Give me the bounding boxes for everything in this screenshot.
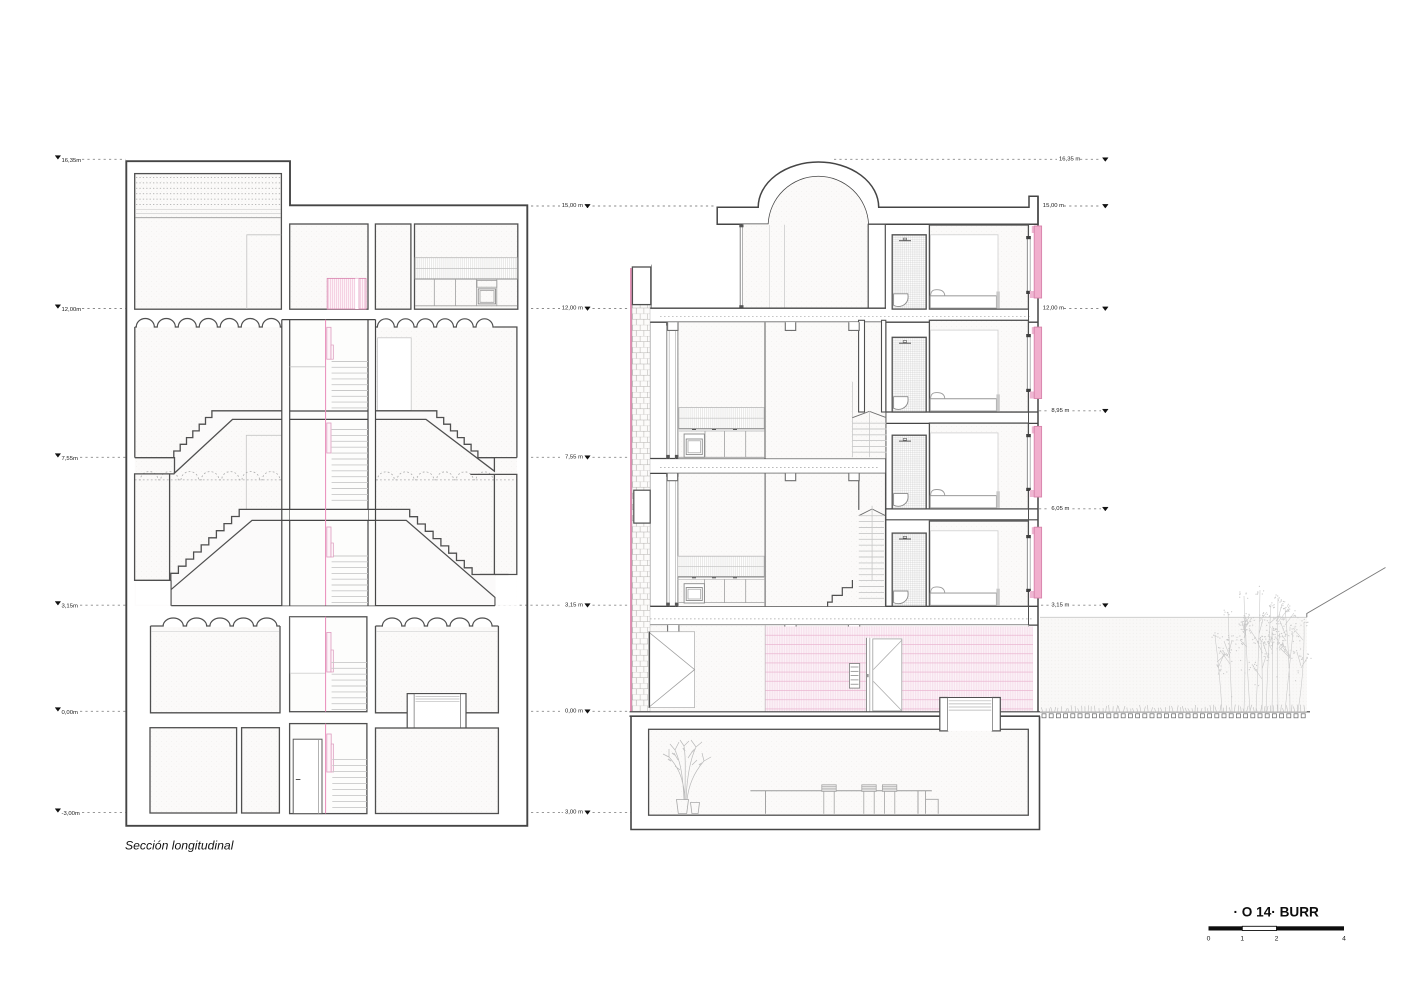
svg-text:6,05 m: 6,05 m (1051, 506, 1069, 512)
svg-text:12,00 m: 12,00 m (562, 306, 583, 312)
svg-text:3,15 m: 3,15 m (1051, 602, 1069, 608)
svg-text:0,00m: 0,00m (62, 710, 78, 716)
svg-text:12,00m: 12,00m (62, 307, 82, 313)
svg-text:0: 0 (1207, 936, 1211, 943)
svg-text:4: 4 (1342, 936, 1346, 943)
svg-text:Sección longitudinal: Sección longitudinal (125, 839, 234, 853)
svg-text:1: 1 (1240, 936, 1244, 943)
svg-text:2: 2 (1275, 936, 1279, 943)
svg-text:12,00 m: 12,00 m (1043, 306, 1064, 312)
svg-text:16,35m: 16,35m (62, 158, 82, 164)
svg-text:8,95 m: 8,95 m (1051, 408, 1069, 414)
svg-text:-3,00m: -3,00m (62, 811, 80, 817)
svg-text:- 3,00 m: - 3,00 m (561, 810, 583, 816)
svg-text:3,15 m: 3,15 m (565, 602, 583, 608)
svg-text:7,55 m: 7,55 m (565, 455, 583, 461)
svg-text:16,35 m: 16,35 m (1059, 157, 1080, 163)
svg-text:0,00 m: 0,00 m (565, 709, 583, 715)
svg-text:15,00 m: 15,00 m (562, 203, 583, 209)
svg-text:3,15m: 3,15m (62, 604, 78, 610)
svg-text:· O 14· BURR: · O 14· BURR (1234, 905, 1320, 920)
svg-text:7,55m: 7,55m (62, 456, 78, 462)
svg-text:15,00 m: 15,00 m (1043, 203, 1064, 209)
